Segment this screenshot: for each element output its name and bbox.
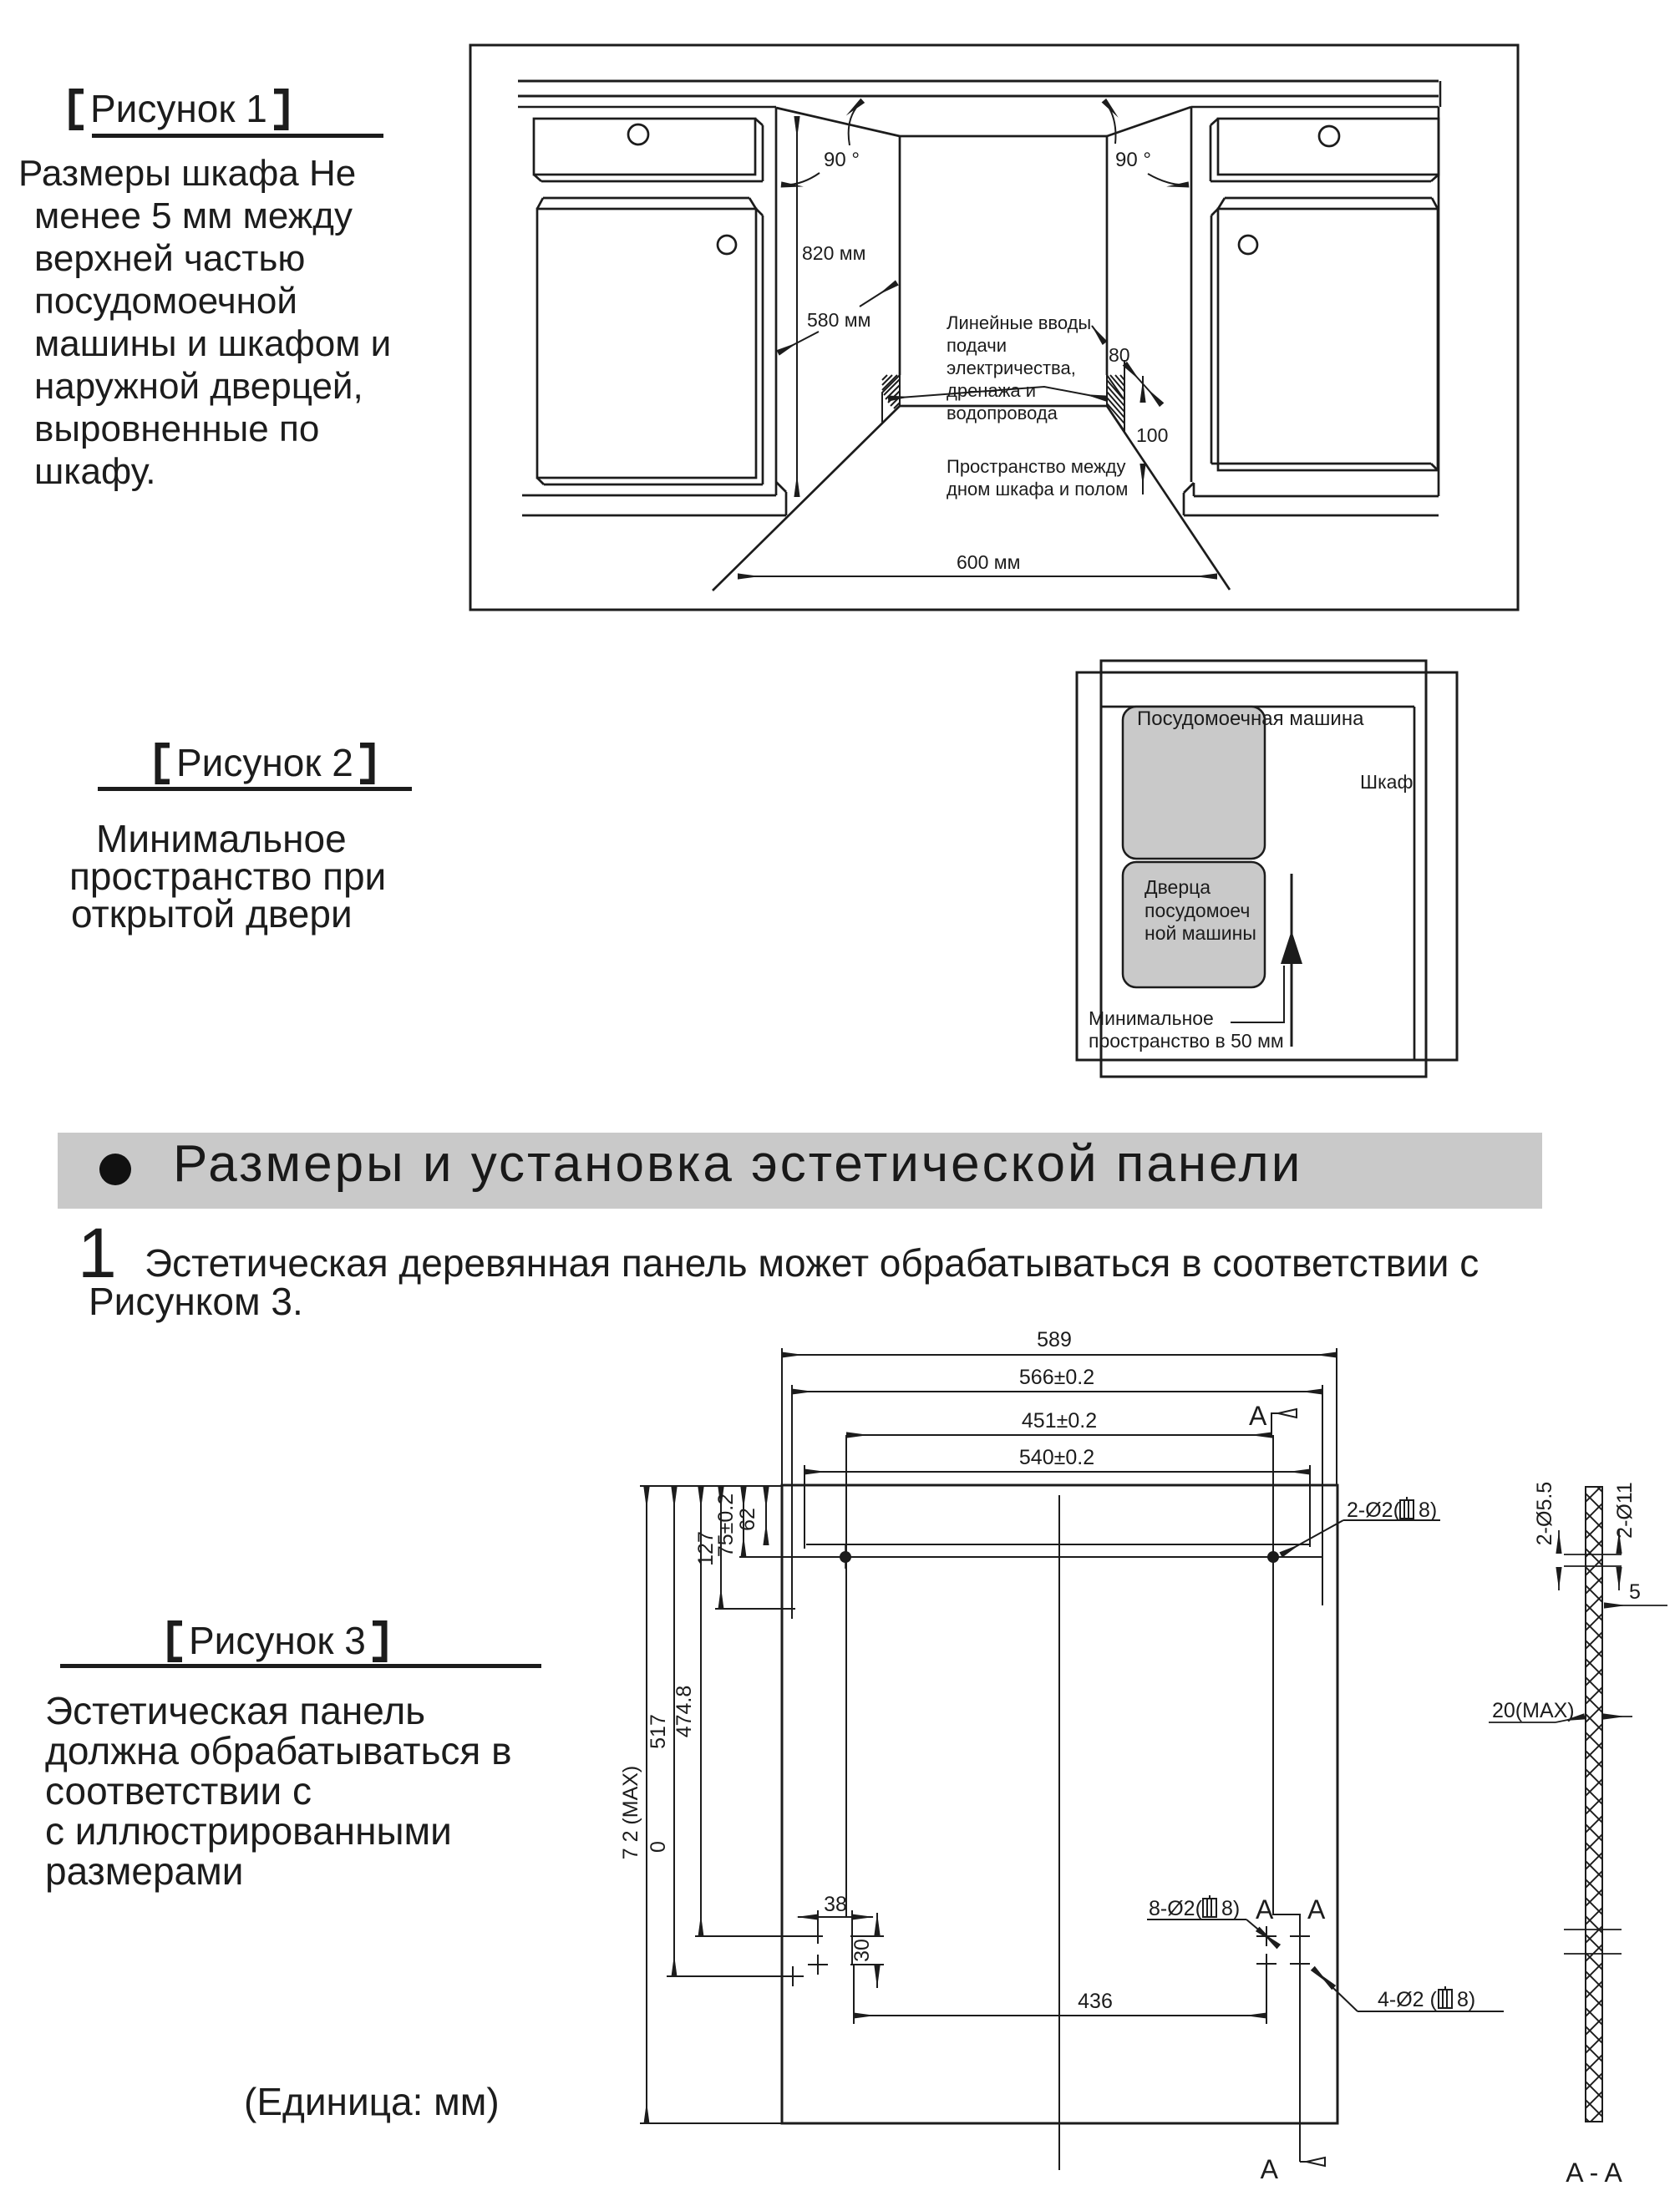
svg-text:A: A [1249, 1401, 1267, 1431]
svg-text:ной машины: ной машины [1145, 922, 1256, 944]
svg-text:0: 0 [647, 1841, 670, 1853]
svg-text:Дверца: Дверца [1145, 876, 1211, 898]
svg-text:Минимальное: Минимальное [1089, 1007, 1214, 1029]
svg-text:540±0.2: 540±0.2 [1019, 1446, 1094, 1469]
svg-text:75±0.2: 75±0.2 [714, 1493, 738, 1557]
svg-text:A: A [1261, 2154, 1279, 2184]
svg-text:20(MAX): 20(MAX) [1492, 1699, 1575, 1722]
svg-text:электричества,: электричества, [947, 358, 1076, 378]
svg-text:62: 62 [736, 1508, 759, 1531]
svg-text:566±0.2: 566±0.2 [1019, 1366, 1094, 1389]
svg-text:8): 8) [1221, 1897, 1240, 1920]
svg-text:38: 38 [824, 1893, 847, 1916]
svg-text:A: A [1256, 1894, 1274, 1925]
svg-text:2-Ø2(: 2-Ø2( [1347, 1499, 1401, 1522]
svg-text:Посудомоечная машина: Посудомоечная машина [1137, 707, 1364, 730]
svg-text:90 °: 90 ° [824, 149, 860, 171]
svg-text:580 мм: 580 мм [807, 309, 870, 331]
svg-text:дном шкафа и полом: дном шкафа и полом [947, 479, 1128, 500]
svg-text:600 мм: 600 мм [957, 551, 1020, 573]
svg-text:Пространство между: Пространство между [947, 456, 1126, 477]
svg-text:589: 589 [1037, 1328, 1072, 1351]
svg-text:100: 100 [1136, 424, 1168, 446]
svg-text:Линейные вводы: Линейные вводы [947, 312, 1091, 333]
svg-text:2-Ø5.5: 2-Ø5.5 [1533, 1482, 1556, 1545]
svg-text:436: 436 [1078, 1990, 1113, 2013]
svg-text:820 мм: 820 мм [802, 242, 865, 264]
svg-text:A: A [1307, 1894, 1326, 1925]
svg-text:2-Ø11: 2-Ø11 [1613, 1482, 1637, 1539]
svg-text:Шкаф: Шкаф [1360, 771, 1413, 793]
svg-text:подачи: подачи [947, 335, 1007, 356]
svg-text:A - A: A - A [1566, 2158, 1622, 2188]
svg-text:4-Ø2 (: 4-Ø2 ( [1378, 1988, 1438, 2011]
svg-text:8): 8) [1419, 1499, 1437, 1522]
svg-text:474.8: 474.8 [673, 1686, 696, 1738]
svg-text:80: 80 [1109, 344, 1130, 366]
svg-text:30: 30 [850, 1939, 874, 1962]
svg-text:8-Ø2(: 8-Ø2( [1149, 1897, 1203, 1920]
svg-text:пространство в 50 мм: пространство в 50 мм [1089, 1030, 1284, 1052]
svg-text:посудомоеч: посудомоеч [1145, 900, 1250, 921]
svg-text:водопровода: водопровода [947, 403, 1058, 423]
svg-text:517: 517 [647, 1714, 670, 1749]
svg-text:451±0.2: 451±0.2 [1022, 1409, 1097, 1433]
svg-text:8): 8) [1457, 1988, 1475, 2011]
svg-text:5: 5 [1629, 1580, 1641, 1604]
svg-text:90 °: 90 ° [1115, 149, 1151, 171]
svg-text:7 2 (MAX): 7 2 (MAX) [619, 1766, 642, 1860]
